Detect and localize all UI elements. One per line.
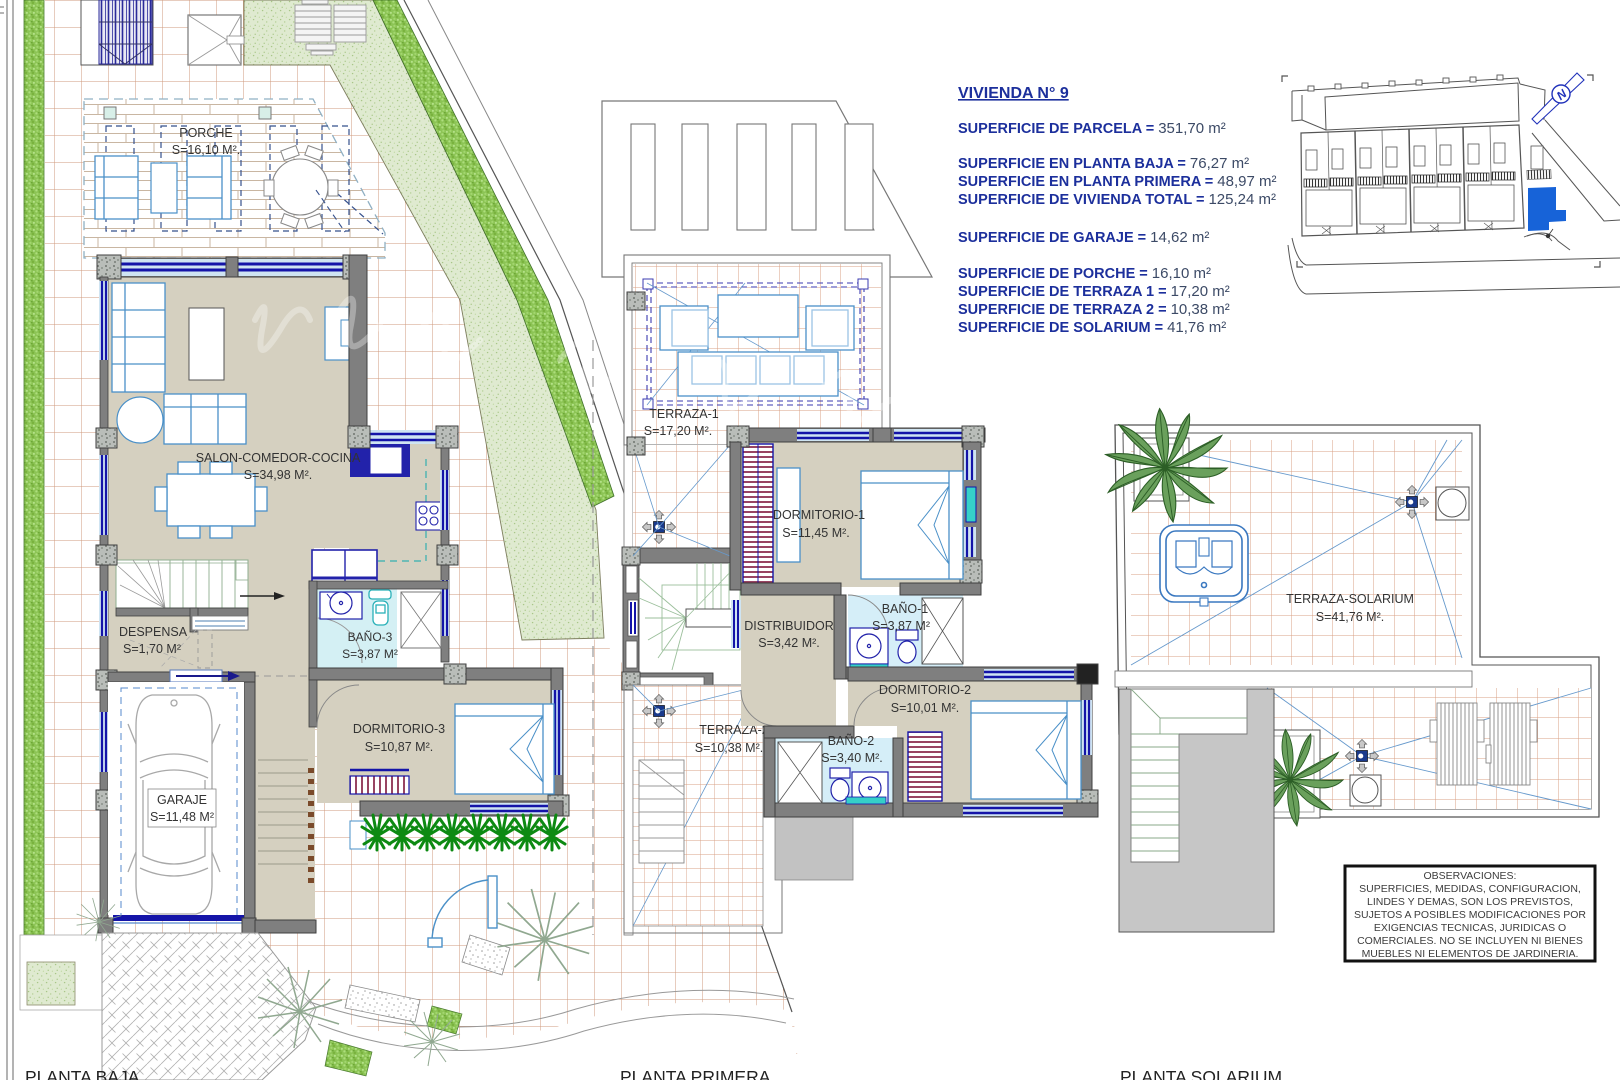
svg-text:S=1,70 M²: S=1,70 M²	[123, 642, 181, 656]
svg-text:S=3,87 M²: S=3,87 M²	[872, 619, 930, 633]
svg-text:S=16,10 M².: S=16,10 M².	[172, 143, 240, 157]
svg-text:S=17,20 M².: S=17,20 M².	[644, 424, 712, 438]
svg-text:OBSERVACIONES:: OBSERVACIONES:	[1424, 870, 1517, 882]
svg-text:BAÑO-1: BAÑO-1	[882, 602, 929, 616]
svg-text:SUPERFICIE DE GARAJE = 14,62 m: SUPERFICIE DE GARAJE = 14,62 m²	[958, 229, 1209, 246]
svg-text:SUJETOS A POSIBLES MODIFICACIO: SUJETOS A POSIBLES MODIFICACIONES POR	[1354, 909, 1586, 921]
svg-text:LINDES Y DEMAS, SON LOS PREVIS: LINDES Y DEMAS, SON LOS PREVISTOS,	[1367, 896, 1573, 908]
svg-text:S=10,38 M².: S=10,38 M².	[695, 741, 763, 755]
svg-text:S=10,87 M².: S=10,87 M².	[365, 740, 433, 754]
svg-text:PLANTA PRIMERA: PLANTA PRIMERA	[620, 1067, 771, 1080]
svg-text:SUPERFICIE EN PLANTA BAJA = 76: SUPERFICIE EN PLANTA BAJA = 76,27 m²	[958, 155, 1249, 172]
svg-text:DISTRIBUIDOR: DISTRIBUIDOR	[744, 619, 834, 633]
svg-text:DORMITORIO-1: DORMITORIO-1	[773, 508, 865, 522]
svg-text:SUPERFICIE DE PORCHE = 16,10 m: SUPERFICIE DE PORCHE = 16,10 m²	[958, 265, 1211, 282]
svg-text:BAÑO-3: BAÑO-3	[348, 630, 393, 644]
svg-text:SUPERFICIE DE SOLARIUM = 41,76: SUPERFICIE DE SOLARIUM = 41,76 m²	[958, 319, 1226, 336]
svg-text:SUPERFICIE EN PLANTA PRIMERA =: SUPERFICIE EN PLANTA PRIMERA = 48,97 m²	[958, 173, 1276, 190]
svg-text:EXIGENCIAS TECNICAS, JURIDICAS: EXIGENCIAS TECNICAS, JURIDICAS O	[1374, 922, 1566, 934]
svg-text:DORMITORIO-3: DORMITORIO-3	[353, 722, 445, 736]
svg-text:S=34,98 M².: S=34,98 M².	[244, 468, 312, 482]
svg-text:PLANTA BAJA: PLANTA BAJA	[25, 1067, 140, 1080]
svg-text:DORMITORIO-2: DORMITORIO-2	[879, 683, 971, 697]
svg-text:SUPERFICIE DE PARCELA = 351,70: SUPERFICIE DE PARCELA = 351,70 m²	[958, 120, 1226, 137]
svg-text:SUPERFICIE DE TERRAZA 1 = 17,2: SUPERFICIE DE TERRAZA 1 = 17,20 m²	[958, 283, 1230, 300]
svg-text:S=41,76 M².: S=41,76 M².	[1316, 610, 1384, 624]
svg-text:BAÑO-2: BAÑO-2	[828, 734, 875, 748]
svg-text:S=3,87 M²: S=3,87 M²	[342, 647, 398, 661]
svg-text:S=3,40 M².: S=3,40 M².	[821, 751, 883, 765]
svg-text:SUPERFICIE DE VIVIENDA TOTAL =: SUPERFICIE DE VIVIENDA TOTAL = 125,24 m²	[958, 191, 1276, 208]
svg-text:S=11,45 M².: S=11,45 M².	[782, 526, 850, 540]
svg-text:S=3,42 M².: S=3,42 M².	[758, 636, 820, 650]
svg-text:S=11,48 M²: S=11,48 M²	[150, 810, 214, 824]
svg-text:TERRAZA-SOLARIUM: TERRAZA-SOLARIUM	[1286, 592, 1414, 606]
svg-text:VIVIENDA N° 9: VIVIENDA N° 9	[958, 85, 1069, 102]
svg-text:TERRAZA-1: TERRAZA-1	[649, 407, 719, 421]
svg-text:SALON-COMEDOR-COCINA: SALON-COMEDOR-COCINA	[196, 451, 361, 465]
svg-text:DESPENSA: DESPENSA	[119, 625, 188, 639]
svg-text:MUEBLES NI ELEMENTOS DE JARDIN: MUEBLES NI ELEMENTOS DE JARDINERIA.	[1362, 948, 1579, 960]
svg-text:SUPERFICIES, MEDIDAS, CONFIGUR: SUPERFICIES, MEDIDAS, CONFIGURACION,	[1359, 883, 1581, 895]
svg-text:PORCHE: PORCHE	[179, 126, 232, 140]
svg-text:COMERCIALES. NO SE INCLUYEN NI: COMERCIALES. NO SE INCLUYEN NI BIENES	[1357, 935, 1583, 947]
svg-text:SUPERFICIE DE TERRAZA 2 = 10,3: SUPERFICIE DE TERRAZA 2 = 10,38 m²	[958, 301, 1230, 318]
svg-text:GARAJE: GARAJE	[157, 793, 207, 807]
svg-text:S=10,01 M².: S=10,01 M².	[891, 701, 959, 715]
svg-text:PLANTA SOLARIUM: PLANTA SOLARIUM	[1120, 1067, 1282, 1080]
